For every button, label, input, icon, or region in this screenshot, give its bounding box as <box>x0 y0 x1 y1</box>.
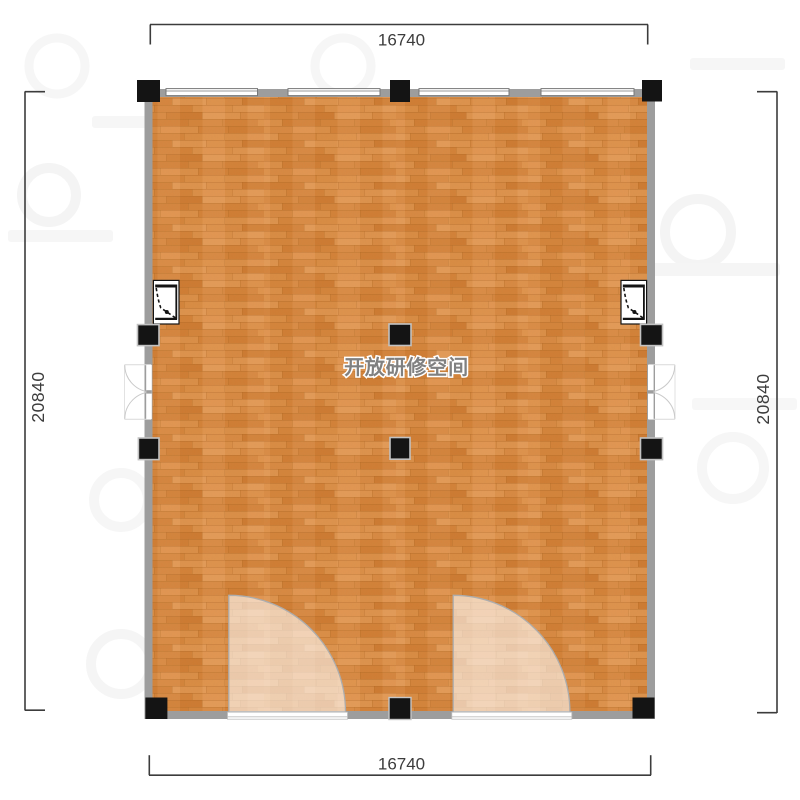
svg-text:开放研修空间: 开放研修空间 <box>344 355 469 379</box>
svg-text:16740: 16740 <box>378 31 425 50</box>
svg-text:20840: 20840 <box>753 373 773 424</box>
svg-text:16740: 16740 <box>378 755 425 774</box>
svg-text:20840: 20840 <box>28 371 48 422</box>
